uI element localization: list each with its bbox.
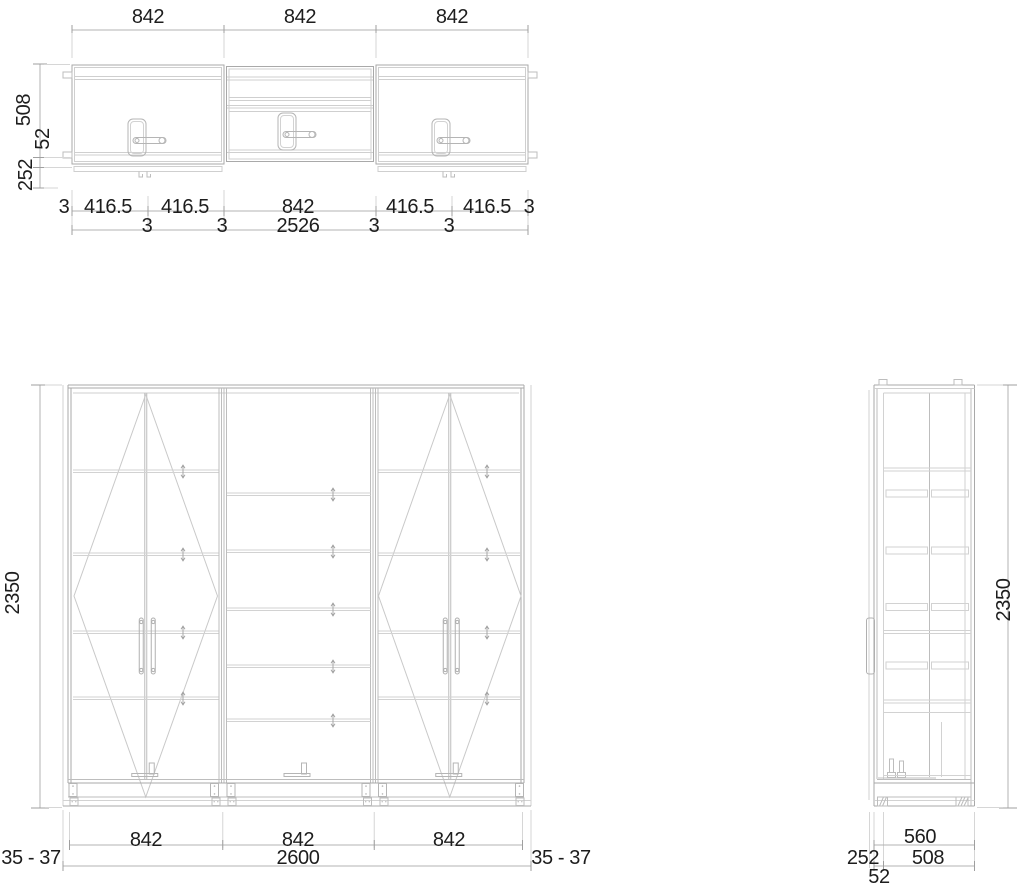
dim-plan-gap-f: 3: [444, 216, 455, 236]
door-lock-handle-icon: [432, 119, 470, 156]
side-view: [867, 380, 1018, 872]
wall-bracket-icon: [528, 152, 537, 158]
plinth-bracket-icon: [516, 784, 524, 797]
door-swing-lines: [74, 395, 218, 798]
plinth-bracket-icon: [211, 784, 219, 797]
hinge-hook-icon: [443, 172, 447, 178]
dim-plan-door-c: 842: [282, 197, 314, 217]
shelf-adjust-icon: [181, 692, 185, 705]
dim-side-height: 2350: [994, 579, 1014, 622]
side-shelves: [884, 468, 972, 713]
door-pull-icon: [443, 618, 447, 674]
wall-bracket-icon: [528, 72, 537, 78]
dim-plan-gap-b: 3: [524, 197, 535, 217]
door-swing-lines: [379, 395, 522, 798]
shelf-adjust-icon: [181, 626, 185, 639]
dim-front-total: 2600: [277, 848, 320, 868]
leveling-foot-icon: [380, 798, 388, 806]
door-pull-icon: [455, 618, 459, 674]
dim-front-width-1: 842: [130, 830, 162, 850]
partition-walls: [219, 388, 378, 783]
dim-plan-depth-body: 508: [14, 94, 34, 126]
dim-front-height: 2350: [3, 572, 23, 615]
shelf-lines: [227, 493, 371, 722]
side-dimension-lines: [870, 385, 1018, 871]
dim-plan-door-b: 416.5: [161, 197, 209, 217]
dim-side-depth-door: 52: [868, 867, 889, 887]
front-door-section-right: [379, 393, 522, 797]
floor-bracket-icon: [284, 763, 310, 777]
dim-plan-width-3: 842: [436, 7, 468, 27]
door-pull-icon: [139, 618, 143, 674]
shelf-lines: [379, 470, 522, 700]
plinth-bracket-icon: [362, 784, 370, 797]
side-plinth: [874, 776, 975, 807]
side-filler-lines: [63, 385, 531, 806]
hinge-hook-icon: [451, 172, 455, 178]
shelf-adjust-icon: [331, 714, 335, 727]
leveling-foot-icon: [228, 798, 236, 806]
side-carcass: [869, 380, 975, 807]
shelf-adjust-icon: [181, 465, 185, 478]
dim-front-width-3: 842: [433, 830, 465, 850]
plan-cabinet-left: [63, 65, 224, 177]
shelf-adjust-icon: [485, 548, 489, 561]
hinge-hook-icon: [139, 172, 143, 178]
dim-side-depth-offset: 252: [847, 848, 879, 868]
shelf-adjust-icon: [331, 603, 335, 616]
front-view: [31, 385, 531, 871]
front-dimension-lines: [31, 385, 531, 871]
leveling-foot-icon: [956, 797, 968, 806]
dim-plan-width-2: 842: [284, 7, 316, 27]
side-door-handle-icon: [867, 618, 875, 674]
plan-cabinet-right: [376, 65, 537, 177]
front-plinth: [63, 780, 531, 807]
plan-cabinet-middle: [227, 67, 374, 162]
front-shelf-section-middle: [227, 488, 371, 776]
dim-plan-width-1: 842: [132, 7, 164, 27]
door-lock-handle-icon: [278, 113, 316, 150]
wall-bracket-icon: [879, 380, 887, 386]
dim-plan-gap-a: 3: [59, 197, 70, 217]
shelf-adjust-icon: [485, 692, 489, 705]
leveling-foot-icon: [364, 798, 372, 806]
shelf-adjust-icon: [331, 660, 335, 673]
dim-plan-gap-d: 3: [217, 216, 228, 236]
dim-plan-door-a: 416.5: [84, 197, 132, 217]
dim-plan-gap-c: 3: [142, 216, 153, 236]
plinth-bracket-icon: [227, 784, 235, 797]
shelf-adjust-icon: [181, 548, 185, 561]
shelf-adjust-icon: [485, 465, 489, 478]
technical-drawing-canvas: 842 842 842 508 52 252 3 416.5 416.5 842…: [0, 0, 1024, 890]
dim-front-gap-right: 35 - 37: [531, 848, 590, 868]
wall-bracket-icon: [63, 72, 72, 78]
door-pull-icon: [151, 618, 155, 674]
dim-side-depth-body: 508: [912, 848, 944, 868]
wall-bracket-icon: [954, 380, 962, 386]
hinge-hook-icon: [147, 172, 151, 178]
plinth-bracket-icon: [379, 784, 387, 797]
door-lock-handle-icon: [128, 119, 166, 156]
shelf-adjust-icon: [331, 488, 335, 501]
shelf-lines: [73, 470, 219, 700]
dim-plan-gap-e: 3: [369, 216, 380, 236]
leveling-foot-icon: [70, 798, 78, 806]
dim-plan-depth-door: 52: [33, 128, 53, 149]
leveling-foot-icon: [516, 798, 524, 806]
plinth-bracket-icon: [69, 784, 77, 797]
leveling-foot-icon: [212, 798, 220, 806]
dim-front-gap-left: 35 - 37: [1, 848, 60, 868]
shelf-adjust-icon: [485, 626, 489, 639]
dim-plan-total: 2526: [277, 216, 320, 236]
dim-plan-door-e: 416.5: [463, 197, 511, 217]
drawing-linework: [0, 0, 1024, 890]
shelf-adjust-icon: [331, 545, 335, 558]
leveling-foot-icon: [878, 797, 888, 806]
dim-side-depth-total: 560: [904, 827, 936, 847]
front-door-section-left: [73, 393, 219, 797]
dim-plan-door-d: 416.5: [386, 197, 434, 217]
dim-plan-depth-offset: 252: [16, 159, 36, 191]
front-carcass: [68, 385, 524, 783]
